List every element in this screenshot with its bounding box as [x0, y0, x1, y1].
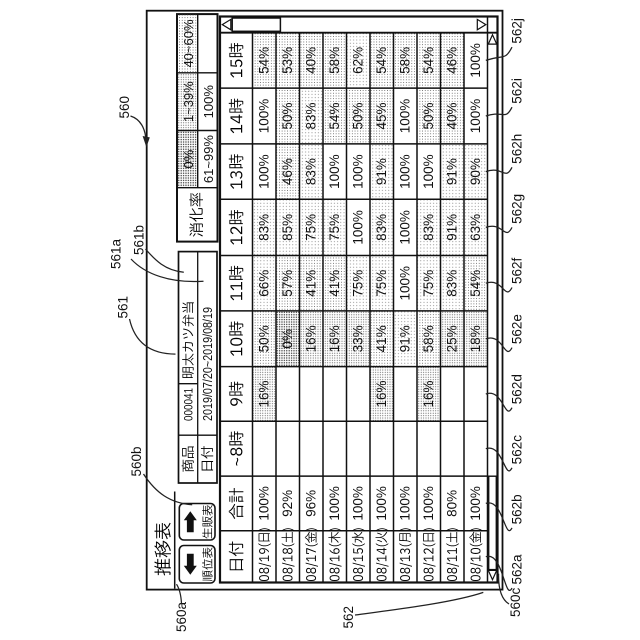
- svg-text:83%: 83%: [445, 270, 460, 297]
- svg-text:16%: 16%: [257, 380, 272, 407]
- svg-text:41%: 41%: [327, 270, 342, 297]
- svg-text:33%: 33%: [351, 325, 366, 352]
- svg-text:85%: 85%: [280, 214, 295, 241]
- svg-text:66%: 66%: [257, 270, 272, 297]
- svg-text:40%: 40%: [304, 47, 319, 74]
- svg-text:100%: 100%: [257, 154, 272, 189]
- svg-text:75%: 75%: [421, 270, 436, 297]
- svg-text:16%: 16%: [421, 380, 436, 407]
- svg-text:92%: 92%: [280, 490, 295, 517]
- svg-text:000041: 000041: [182, 388, 196, 421]
- svg-text:2019/07/20~2019/08/19: 2019/07/20~2019/08/19: [201, 307, 215, 421]
- svg-text:562f: 562f: [510, 257, 525, 284]
- svg-text:50%: 50%: [351, 102, 366, 129]
- svg-text:561b: 561b: [132, 225, 147, 255]
- svg-text:54%: 54%: [468, 270, 483, 297]
- svg-text:83%: 83%: [304, 102, 319, 129]
- svg-text:83%: 83%: [257, 214, 272, 241]
- svg-text:562a: 562a: [510, 554, 525, 585]
- svg-text:100%: 100%: [421, 486, 436, 521]
- svg-text:562h: 562h: [510, 134, 525, 164]
- svg-text:0%: 0%: [280, 329, 295, 349]
- svg-text:100%: 100%: [201, 85, 216, 119]
- svg-text:83%: 83%: [374, 214, 389, 241]
- svg-text:54%: 54%: [421, 47, 436, 74]
- svg-text:100%: 100%: [398, 210, 413, 245]
- svg-text:100%: 100%: [468, 99, 483, 134]
- svg-text:75%: 75%: [374, 270, 389, 297]
- svg-text:41%: 41%: [304, 270, 319, 297]
- svg-text:16%: 16%: [327, 325, 342, 352]
- svg-text:561: 561: [116, 296, 131, 319]
- svg-text:75%: 75%: [327, 214, 342, 241]
- svg-text:18%: 18%: [468, 325, 483, 352]
- svg-text:562b: 562b: [510, 494, 525, 524]
- svg-text:100%: 100%: [421, 154, 436, 189]
- svg-text:562i: 562i: [510, 78, 525, 104]
- svg-text:91%: 91%: [445, 214, 460, 241]
- svg-text:100%: 100%: [468, 486, 483, 521]
- svg-text:560: 560: [117, 96, 132, 119]
- svg-text:54%: 54%: [257, 47, 272, 74]
- svg-text:62%: 62%: [351, 47, 366, 74]
- svg-text:75%: 75%: [351, 270, 366, 297]
- svg-text:90%: 90%: [468, 158, 483, 185]
- svg-text:91%: 91%: [398, 325, 413, 352]
- svg-text:46%: 46%: [445, 47, 460, 74]
- svg-text:50%: 50%: [280, 102, 295, 129]
- svg-text:100%: 100%: [398, 99, 413, 134]
- svg-text:562g: 562g: [510, 194, 525, 224]
- svg-text:58%: 58%: [327, 47, 342, 74]
- svg-text:560c: 560c: [508, 587, 523, 617]
- svg-text:83%: 83%: [421, 214, 436, 241]
- svg-text:83%: 83%: [304, 158, 319, 185]
- svg-text:50%: 50%: [257, 325, 272, 352]
- svg-text:100%: 100%: [351, 486, 366, 521]
- svg-text:16%: 16%: [304, 325, 319, 352]
- svg-text:40~60%: 40~60%: [181, 19, 196, 68]
- svg-text:91%: 91%: [374, 158, 389, 185]
- svg-text:96%: 96%: [304, 490, 319, 517]
- svg-text:100%: 100%: [374, 486, 389, 521]
- svg-text:63%: 63%: [468, 214, 483, 241]
- svg-text:54%: 54%: [374, 47, 389, 74]
- svg-text:40%: 40%: [445, 102, 460, 129]
- svg-text:80%: 80%: [445, 490, 460, 517]
- svg-text:57%: 57%: [280, 270, 295, 297]
- svg-text:61~99%: 61~99%: [201, 135, 216, 184]
- svg-text:100%: 100%: [398, 266, 413, 301]
- svg-text:562: 562: [341, 606, 356, 629]
- svg-text:25%: 25%: [445, 325, 460, 352]
- svg-text:100%: 100%: [351, 210, 366, 245]
- svg-text:91%: 91%: [445, 158, 460, 185]
- svg-text:560a: 560a: [174, 601, 189, 632]
- svg-text:75%: 75%: [304, 214, 319, 241]
- svg-text:58%: 58%: [398, 47, 413, 74]
- svg-text:562e: 562e: [510, 314, 525, 344]
- svg-text:1~39%: 1~39%: [181, 81, 196, 122]
- svg-text:100%: 100%: [351, 154, 366, 189]
- svg-text:100%: 100%: [398, 486, 413, 521]
- svg-text:100%: 100%: [327, 486, 342, 521]
- svg-text:562j: 562j: [510, 18, 525, 44]
- svg-text:50%: 50%: [421, 102, 436, 129]
- svg-text:58%: 58%: [421, 325, 436, 352]
- svg-text:562c: 562c: [510, 435, 525, 465]
- svg-text:45%: 45%: [374, 102, 389, 129]
- svg-text:100%: 100%: [257, 486, 272, 521]
- svg-text:100%: 100%: [398, 154, 413, 189]
- svg-text:562d: 562d: [510, 374, 525, 404]
- svg-text:100%: 100%: [468, 43, 483, 78]
- svg-text:100%: 100%: [327, 154, 342, 189]
- svg-text:0%: 0%: [181, 149, 196, 168]
- svg-text:561a: 561a: [109, 238, 124, 269]
- svg-text:41%: 41%: [374, 325, 389, 352]
- svg-text:100%: 100%: [257, 99, 272, 134]
- svg-text:53%: 53%: [280, 47, 295, 74]
- svg-text:560b: 560b: [129, 446, 144, 476]
- svg-text:46%: 46%: [280, 158, 295, 185]
- svg-text:54%: 54%: [327, 102, 342, 129]
- svg-text:16%: 16%: [374, 380, 389, 407]
